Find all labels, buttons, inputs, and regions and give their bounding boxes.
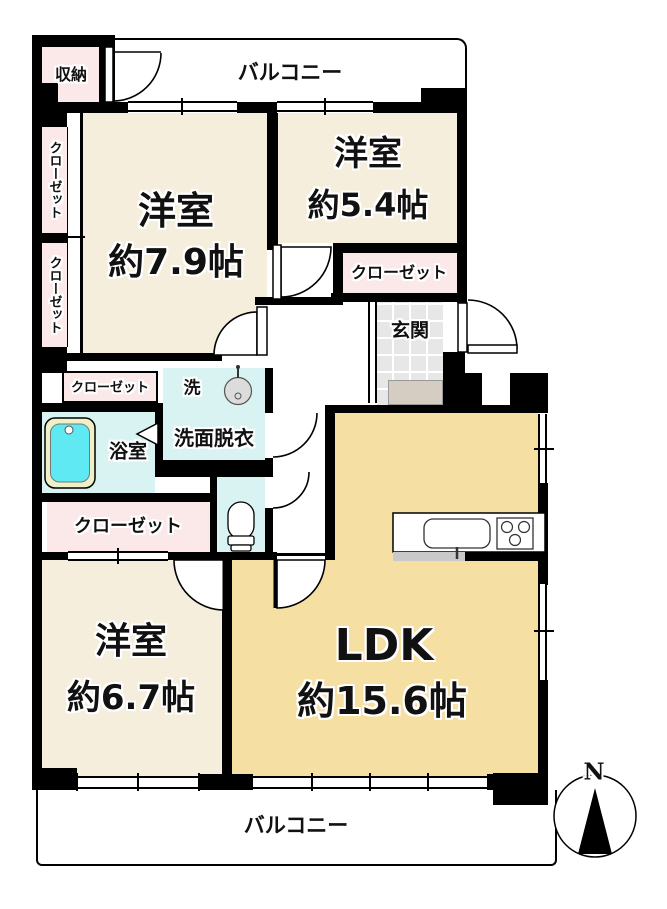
washer-label: 洗 xyxy=(184,381,201,398)
closet-under-5-4-label: クローゼット xyxy=(351,265,447,281)
balcony-bottom-label: バルコニー xyxy=(244,816,349,837)
toilet-bowl xyxy=(228,502,254,539)
entrance-door-leaf-open xyxy=(458,303,467,352)
closet-horizontal-label: クローゼット xyxy=(71,382,149,395)
washbasin-faucet-knob xyxy=(236,365,240,369)
room-5-4-size: 約5.4帖 xyxy=(308,189,429,221)
room-6-7-size: 約6.7帖 xyxy=(67,681,195,715)
room-5-4-name: 洋室 xyxy=(334,137,402,171)
closet-left-1-label: クローゼット xyxy=(48,141,61,219)
kitchen-sink xyxy=(424,519,490,548)
stove-burner xyxy=(502,522,513,533)
bathtub-drain xyxy=(65,426,73,434)
entrance-label: 玄関 xyxy=(391,322,429,341)
entrance-door-arc xyxy=(468,300,517,349)
washroom-label: 洗面脱衣 xyxy=(174,428,254,448)
kitchen-counter-shadow xyxy=(393,552,465,561)
room-5-4-door-leaf xyxy=(273,245,281,299)
room-7-9-door-leaf xyxy=(257,307,267,355)
stove-burner xyxy=(510,535,521,546)
room-6-7-name: 洋室 xyxy=(95,624,167,660)
floor-plan: バルコニー 収納 クローゼット クローゼット 洋室 約7.9帖 洋室 約5.4帖… xyxy=(0,0,667,909)
room-6-7-door-swing xyxy=(174,560,224,610)
toilet-door-arc xyxy=(273,472,309,508)
balcony-top-label: バルコニー xyxy=(238,63,343,84)
closet-bottom-label: クローゼット xyxy=(74,518,182,536)
room-7-9-size: 約7.9帖 xyxy=(108,245,244,281)
closet-left-2-label: クローゼット xyxy=(48,256,61,334)
washbasin-bowl xyxy=(225,378,252,405)
stove-burner xyxy=(519,522,530,533)
ldk-name: LDK xyxy=(335,624,434,668)
washroom-door-arc xyxy=(273,413,317,457)
compass-north-label: N xyxy=(583,761,604,784)
ldk-door-swing xyxy=(277,560,325,608)
storage-label: 収納 xyxy=(55,67,87,83)
ldk-size: 約15.6帖 xyxy=(297,682,467,720)
room-7-9-name: 洋室 xyxy=(138,192,214,230)
balcony-door-leaf xyxy=(105,47,113,102)
toilet-base xyxy=(231,545,251,551)
entrance-door-leaf xyxy=(468,345,517,353)
toilet-seat xyxy=(228,536,254,545)
balcony-door-arc xyxy=(113,53,161,101)
bathroom-label: 浴室 xyxy=(109,443,147,462)
room-5-4-door-swing xyxy=(281,247,331,297)
room-7-9-door-swing xyxy=(214,312,257,355)
